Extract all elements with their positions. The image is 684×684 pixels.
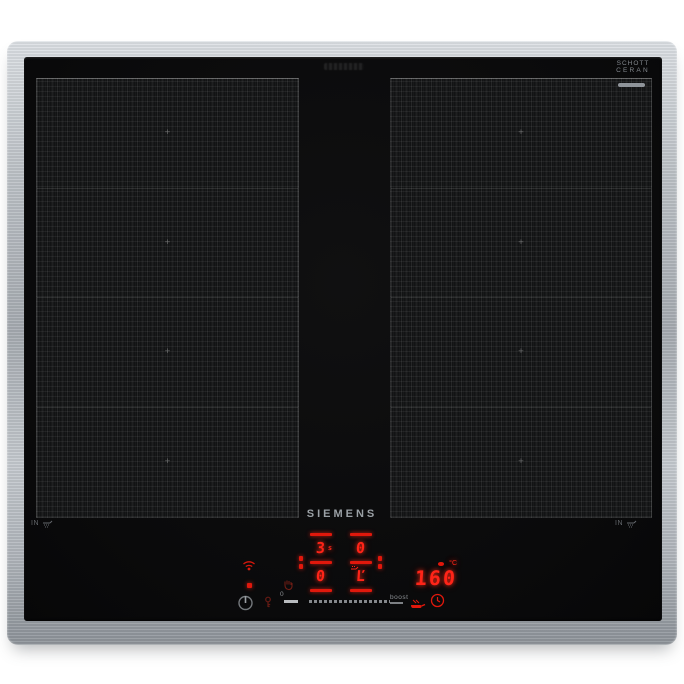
induction-marking-right: IN bbox=[615, 519, 637, 528]
fry-sensor-temperature-display: °C 160 bbox=[409, 559, 457, 588]
power-slider[interactable] bbox=[284, 600, 390, 603]
cooking-zone-band bbox=[37, 189, 298, 299]
cooking-zone-band bbox=[391, 79, 651, 189]
fry-sensor-pan-icon[interactable] bbox=[409, 596, 426, 610]
induction-marking-left: IN bbox=[31, 519, 53, 528]
right-zone-lower-level: Ľ bbox=[356, 570, 366, 583]
cooking-zone-band bbox=[37, 408, 298, 518]
zone-segment-bar bbox=[350, 533, 372, 536]
schott-ceran-logo: SCHOTT CERAN bbox=[612, 60, 654, 75]
power-button[interactable] bbox=[237, 594, 254, 611]
status-indicator-dot bbox=[247, 583, 252, 588]
left-zone-display: 3s 0 bbox=[306, 533, 336, 592]
boost-label[interactable]: boost bbox=[390, 594, 408, 601]
zone-segment-bar bbox=[350, 589, 372, 592]
cooking-zone-grid-right bbox=[390, 78, 652, 518]
in-label: IN bbox=[31, 520, 39, 527]
cooking-zone-band bbox=[391, 189, 651, 299]
zone-select-indicator-left[interactable] bbox=[299, 556, 303, 569]
boost-suffix: s bbox=[328, 542, 333, 555]
zone-segment-bar bbox=[310, 533, 332, 536]
in-label: IN bbox=[615, 520, 623, 527]
induction-hob-photo: SIEMENS SCHOTT CERAN IN IN bbox=[0, 0, 684, 684]
siemens-logo: SIEMENS bbox=[292, 508, 392, 520]
left-zone-lower-level: 0 bbox=[316, 570, 326, 583]
ceran-text: CERAN bbox=[612, 67, 654, 74]
induction-pan-icon bbox=[626, 519, 637, 528]
zone-segment-bar bbox=[310, 589, 332, 592]
cooking-zone-band bbox=[391, 408, 651, 518]
cooking-zone-grid-left bbox=[36, 78, 299, 518]
slider-min-label: 0 bbox=[280, 591, 284, 598]
slider-gap bbox=[298, 600, 307, 603]
timer-clock-icon[interactable] bbox=[430, 593, 445, 608]
left-zone-upper-level: 3s bbox=[316, 542, 326, 555]
zone-segment-bar bbox=[310, 561, 332, 564]
cooking-zone-band bbox=[391, 298, 651, 408]
schott-logo-bar bbox=[618, 83, 645, 87]
zone-segment-bar bbox=[350, 561, 372, 564]
wifi-icon[interactable] bbox=[242, 560, 256, 571]
child-lock-key-icon[interactable] bbox=[262, 596, 274, 609]
slider-active-segment bbox=[284, 600, 298, 603]
cooking-zone-band bbox=[37, 298, 298, 408]
zone-select-indicator-right[interactable] bbox=[378, 556, 382, 569]
right-zone-upper-level: 0 bbox=[356, 542, 366, 555]
temp-value: 160 bbox=[408, 568, 457, 588]
induction-pan-icon bbox=[42, 519, 53, 528]
boost-underline bbox=[390, 602, 403, 604]
model-marking bbox=[324, 63, 364, 70]
right-zone-display: 0 Ľ bbox=[346, 533, 376, 592]
wipe-protection-hand-icon[interactable] bbox=[282, 578, 294, 591]
cooking-zone-band bbox=[37, 79, 298, 189]
schott-text: SCHOTT bbox=[612, 60, 654, 67]
